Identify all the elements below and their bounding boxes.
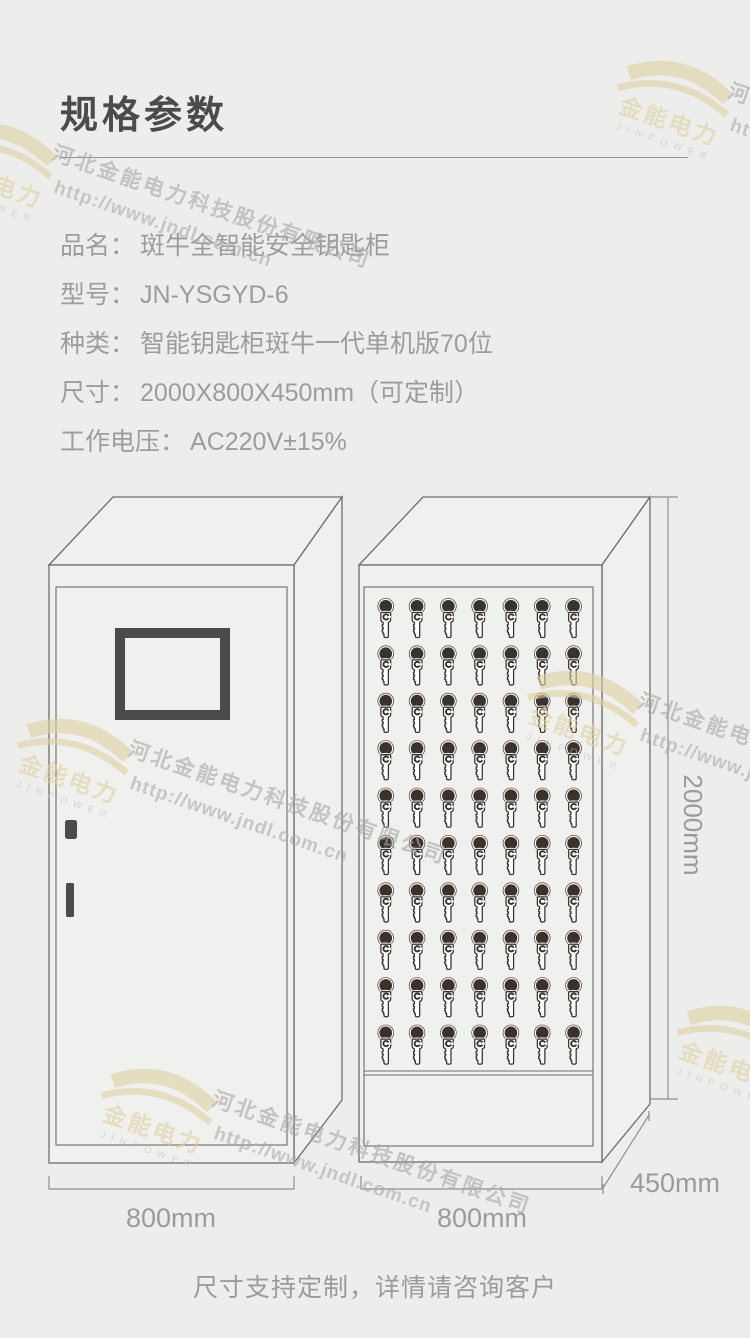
watermark-url-text: http://www.jndl.com.cn	[727, 115, 750, 210]
spec-page: 规格参数 品名：斑牛全智能安全钥匙柜 型号：JN-YSGYD-6 种类：智能钥匙…	[0, 0, 750, 1338]
spec-row-name: 品名：斑牛全智能安全钥匙柜	[60, 226, 493, 255]
watermark-company-text: 河北金能电力科技股份有限公司	[724, 75, 750, 213]
spec-value: AC220V±15%	[190, 428, 347, 456]
spec-value: 斑牛全智能安全钥匙柜	[140, 232, 390, 260]
door-handle	[66, 883, 74, 917]
spec-value: 智能钥匙柜斑牛一代单机版70位	[140, 330, 493, 358]
spec-row-voltage: 工作电压：AC220V±15%	[60, 422, 493, 451]
left-cabinet	[49, 497, 342, 1163]
cabinet-diagram: 金能电力 JINPOWER	[0, 480, 750, 1250]
door-lock	[65, 820, 77, 839]
spec-label: 尺寸：	[60, 379, 135, 407]
depth-label: 450mm	[630, 1168, 720, 1198]
spec-row-type: 种类：智能钥匙柜斑牛一代单机版70位	[60, 324, 493, 353]
width-dimension-right	[361, 1176, 602, 1189]
spec-label: 工作电压：	[60, 428, 185, 456]
spec-label: 型号：	[60, 281, 135, 309]
spec-row-size: 尺寸：2000X800X450mm（可定制）	[60, 373, 493, 402]
page-title: 规格参数	[60, 84, 228, 139]
height-dimension	[650, 497, 678, 1099]
height-label: 2000mm	[678, 774, 708, 875]
left-width-label: 800mm	[126, 1203, 216, 1233]
right-width-label: 800mm	[437, 1203, 527, 1233]
spec-label: 品名：	[60, 232, 135, 260]
cabinet-top-face	[359, 497, 650, 565]
title-divider	[60, 157, 688, 158]
cabinet-side-face	[602, 497, 650, 1162]
cabinet-top-face	[49, 497, 342, 565]
spec-value: 2000X800X450mm（可定制）	[140, 379, 479, 407]
footer-note: 尺寸支持定制，详情请咨询客户	[0, 1268, 750, 1304]
spec-value: JN-YSGYD-6	[140, 281, 289, 309]
width-dimension-left	[49, 1176, 294, 1189]
right-cabinet	[359, 497, 650, 1162]
screen	[125, 638, 220, 710]
jinpower-logo-icon	[593, 30, 749, 174]
spec-list: 品名：斑牛全智能安全钥匙柜 型号：JN-YSGYD-6 种类：智能钥匙柜斑牛一代…	[60, 226, 493, 471]
spec-row-model: 型号：JN-YSGYD-6	[60, 275, 493, 304]
cabinet-side-face	[294, 497, 342, 1163]
spec-label: 种类：	[60, 330, 135, 358]
watermark-tile: 河北金能电力科技股份有限公司 http://www.jndl.com.cn	[591, 30, 750, 347]
